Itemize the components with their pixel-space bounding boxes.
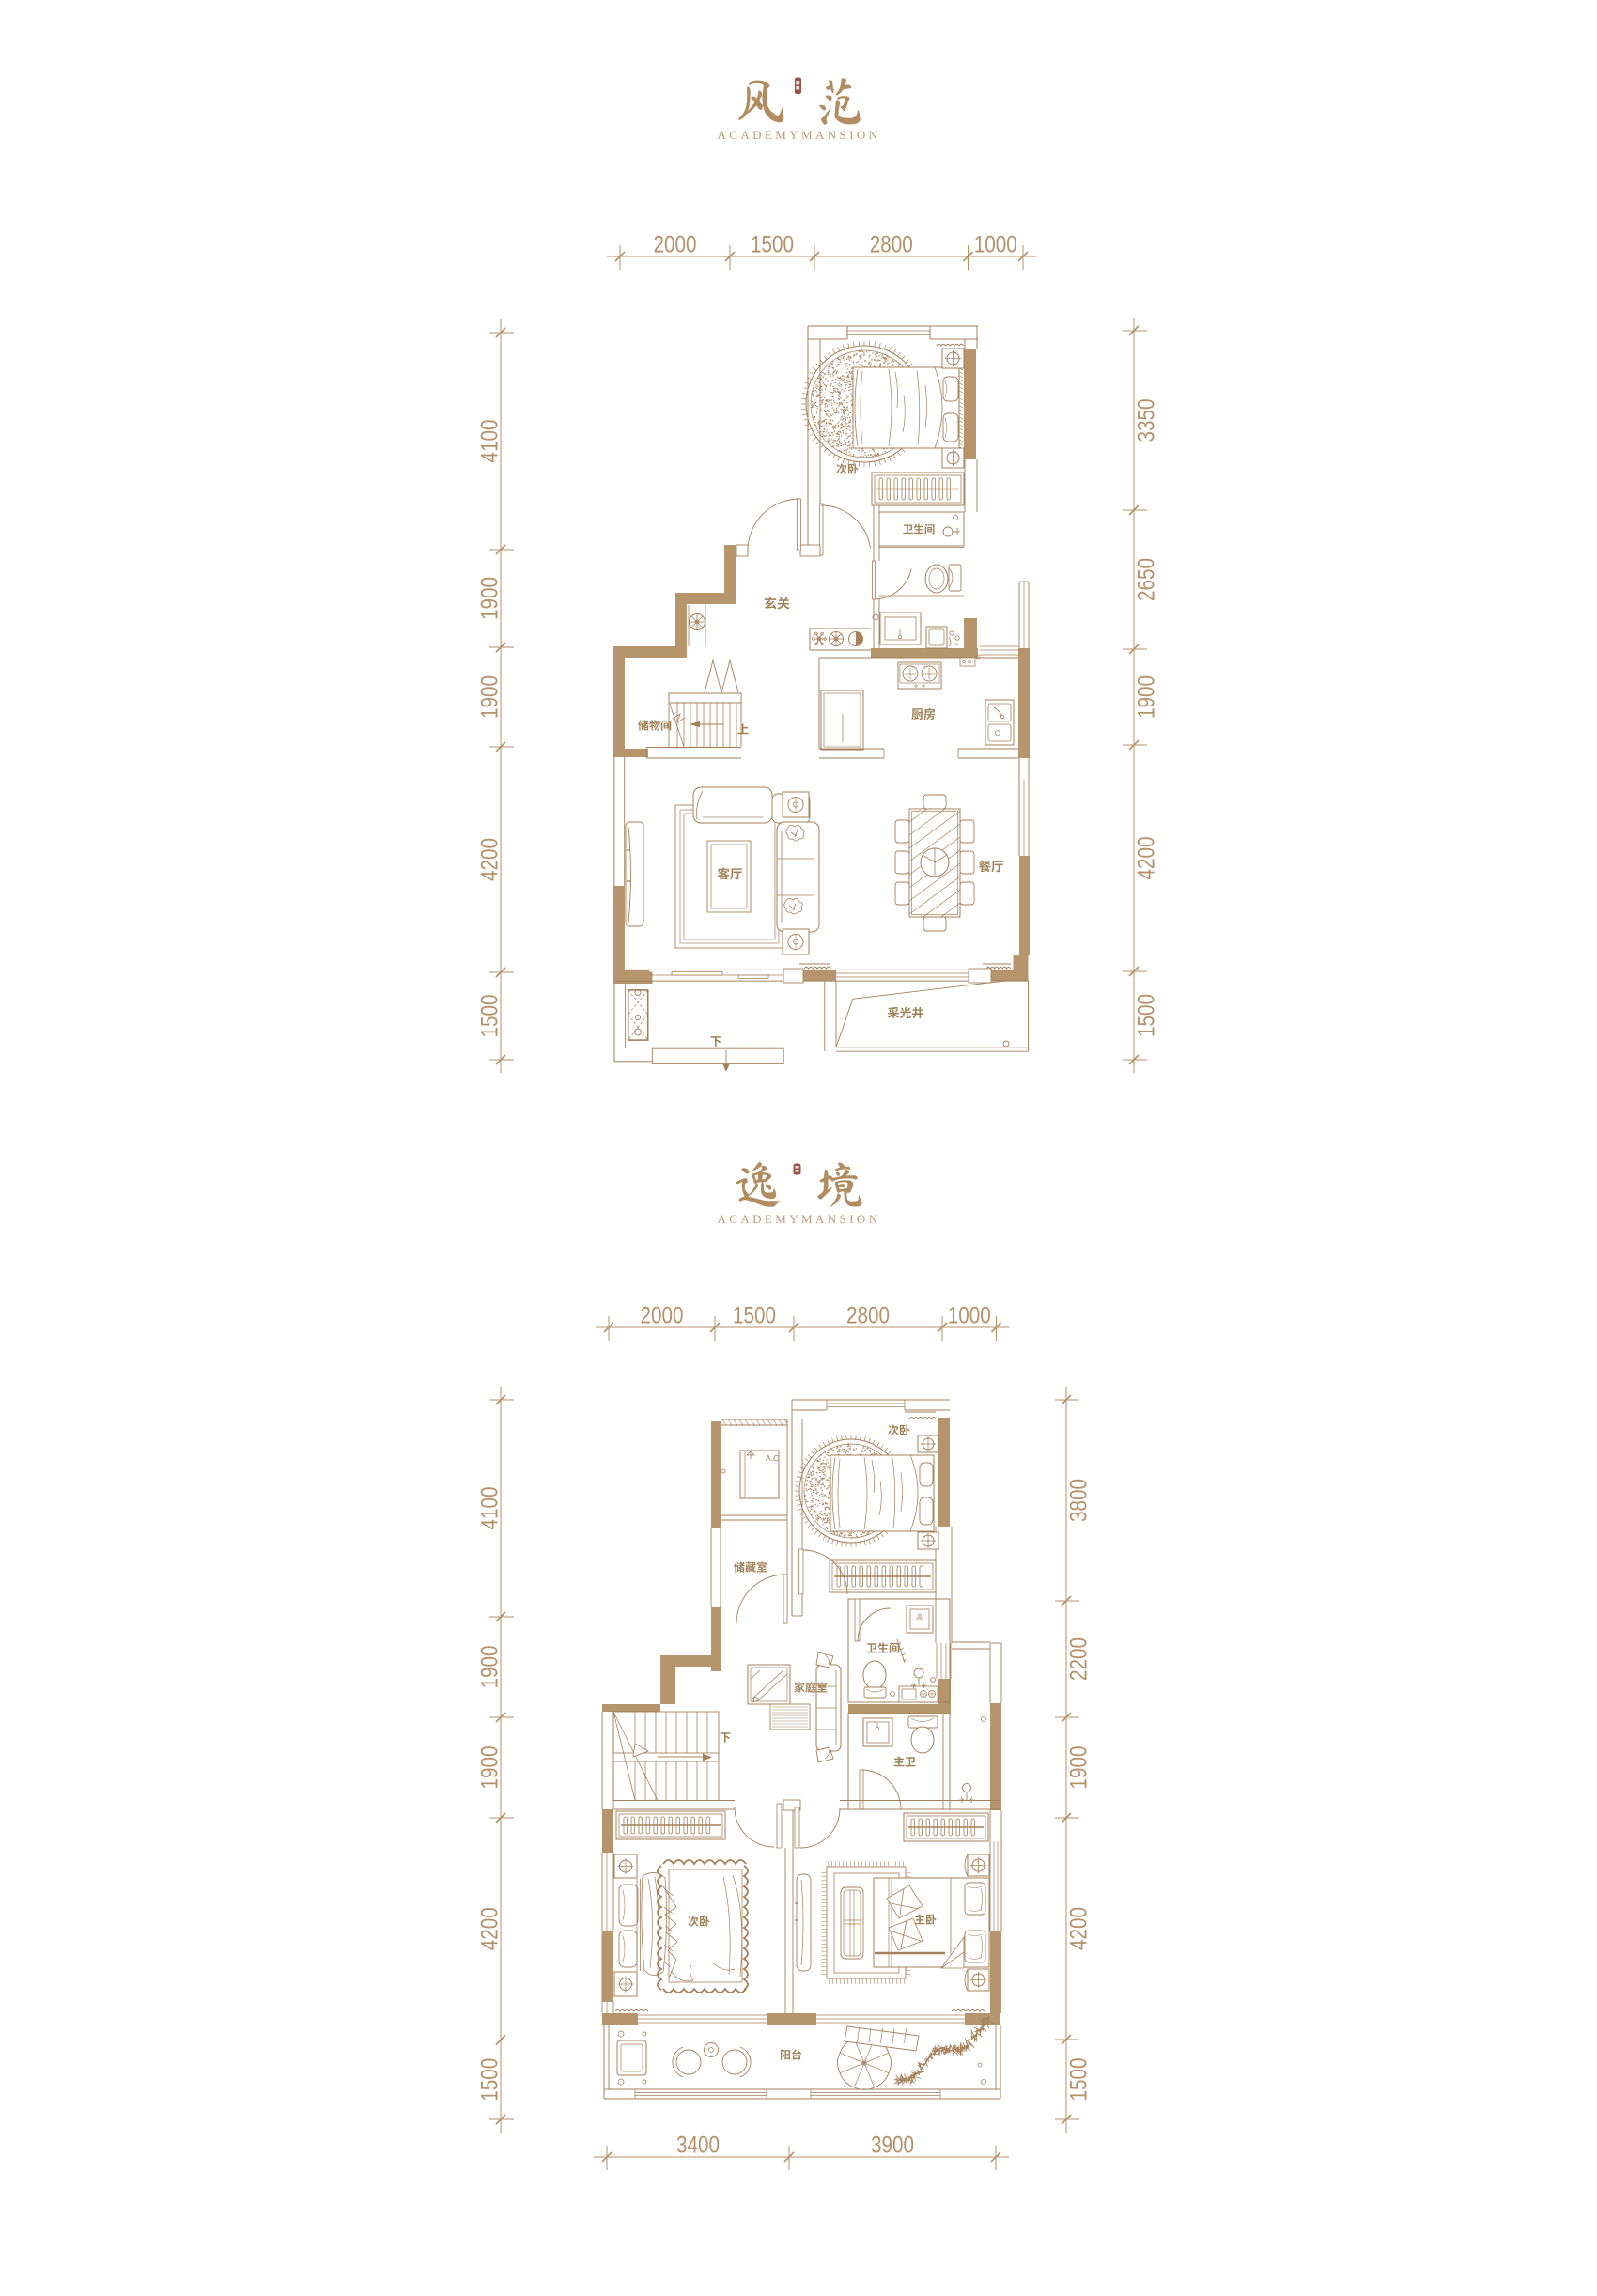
svg-text:4100: 4100 [477,420,504,463]
svg-text:3400: 3400 [676,2133,720,2159]
svg-text:1900: 1900 [477,1746,504,1790]
svg-text:4200: 4200 [1066,1907,1093,1950]
svg-text:1500: 1500 [751,232,794,258]
svg-text:4100: 4100 [477,1487,504,1530]
svg-text:2800: 2800 [846,1303,890,1329]
svg-text:1500: 1500 [476,2058,503,2102]
svg-text:4200: 4200 [1134,837,1160,880]
svg-text:ACADEMYMANSION: ACADEMYMANSION [718,128,881,142]
svg-text:1500: 1500 [733,1303,776,1329]
svg-text:1900: 1900 [477,577,504,620]
svg-text:1000: 1000 [948,1303,991,1329]
svg-text:2000: 2000 [654,232,697,258]
svg-text:1900: 1900 [477,675,504,719]
svg-text:2000: 2000 [641,1303,684,1329]
svg-text:3800: 3800 [1066,1479,1093,1522]
svg-text:3900: 3900 [871,2133,914,2159]
svg-text:ACADEMYMANSION: ACADEMYMANSION [718,1212,881,1226]
svg-text:2800: 2800 [870,232,913,258]
svg-text:2650: 2650 [1134,558,1160,601]
svg-text:1900: 1900 [1134,675,1160,719]
svg-text:4200: 4200 [477,838,504,881]
svg-text:A.C: A.C [766,1453,779,1463]
svg-text:3350: 3350 [1134,399,1160,442]
svg-text:1900: 1900 [1066,1746,1093,1790]
svg-text:1900: 1900 [477,1646,504,1689]
svg-text:4200: 4200 [477,1907,504,1950]
svg-text:1000: 1000 [974,232,1017,258]
svg-text:1500: 1500 [477,995,504,1038]
svg-text:1500: 1500 [1066,2058,1093,2102]
svg-text:1500: 1500 [1134,994,1160,1037]
svg-text:2200: 2200 [1066,1637,1093,1681]
